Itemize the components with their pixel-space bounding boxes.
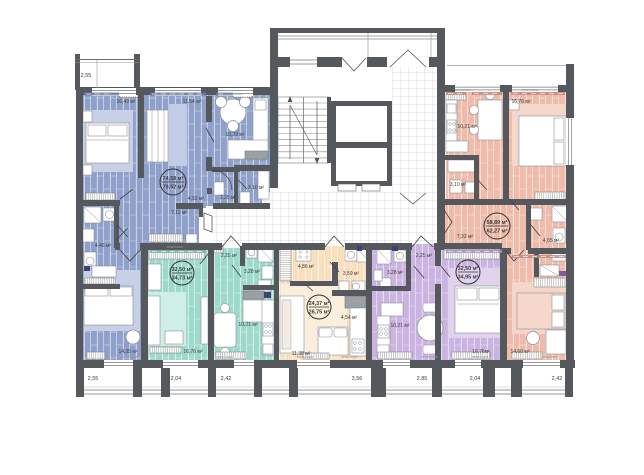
svg-text:4,65 м²: 4,65 м² bbox=[543, 238, 560, 244]
svg-text:26,75 м²: 26,75 м² bbox=[309, 310, 330, 316]
svg-text:62,27 м²: 62,27 м² bbox=[487, 229, 508, 235]
svg-text:2,25 м²: 2,25 м² bbox=[416, 253, 433, 259]
svg-text:4,92 м²: 4,92 м² bbox=[188, 196, 205, 202]
svg-text:влмпллвил: влмпллвил bbox=[167, 92, 184, 96]
svg-text:11,54 м²: 11,54 м² bbox=[183, 99, 202, 105]
svg-text:2,25 м²: 2,25 м² bbox=[221, 253, 238, 259]
svg-text:2,42: 2,42 bbox=[552, 376, 563, 382]
svg-text:влмпллвил: влмпллвил bbox=[542, 355, 559, 359]
svg-text:2,04: 2,04 bbox=[171, 376, 182, 382]
svg-text:10,29 м²: 10,29 м² bbox=[225, 132, 244, 138]
svg-text:32,50 м²: 32,50 м² bbox=[172, 267, 193, 273]
svg-text:влмпллвил: влмпллвил bbox=[422, 355, 439, 359]
svg-text:влмпллвил: влмпллвил bbox=[96, 92, 113, 96]
svg-text:10,21 м²: 10,21 м² bbox=[238, 322, 257, 328]
svg-text:влмпллвил: влмпллвил bbox=[297, 355, 314, 359]
svg-text:влмпллвил: влмпллвил bbox=[122, 355, 139, 359]
svg-text:2,42: 2,42 bbox=[221, 376, 232, 382]
svg-text:10,21 м²: 10,21 м² bbox=[390, 323, 409, 329]
svg-text:влмпллвил: влмпллвил bbox=[472, 355, 489, 359]
svg-text:2,55: 2,55 bbox=[81, 73, 92, 79]
svg-text:10,21 м²: 10,21 м² bbox=[457, 124, 476, 130]
svg-text:16,76 м²: 16,76 м² bbox=[511, 99, 530, 105]
svg-text:3,10 м²: 3,10 м² bbox=[450, 182, 467, 188]
svg-text:влмпллвил: влмпллвил bbox=[217, 355, 234, 359]
svg-text:58,89 м²: 58,89 м² bbox=[487, 220, 508, 226]
svg-text:7,32 м²: 7,32 м² bbox=[457, 234, 474, 240]
svg-text:3,10 м²: 3,10 м² bbox=[248, 185, 265, 191]
svg-text:влмпллвил: влмпллвил bbox=[522, 88, 539, 92]
svg-text:16,43 м²: 16,43 м² bbox=[116, 99, 135, 105]
svg-text:2,25 м²: 2,25 м² bbox=[220, 195, 237, 201]
svg-text:4,86 м²: 4,86 м² bbox=[298, 264, 315, 270]
svg-text:3,28 м²: 3,28 м² bbox=[387, 270, 404, 276]
svg-text:34,95 м²: 34,95 м² bbox=[458, 275, 479, 281]
svg-text:4,54 м²: 4,54 м² bbox=[341, 315, 358, 321]
svg-text:2,55: 2,55 bbox=[88, 376, 99, 382]
svg-text:влмпллвил: влмпллвил bbox=[455, 88, 472, 92]
svg-text:4,46 м²: 4,46 м² bbox=[95, 243, 112, 249]
svg-text:2,85: 2,85 bbox=[417, 376, 428, 382]
svg-text:влмпллвил: влмпллвил bbox=[227, 92, 244, 96]
svg-text:34,73 м²: 34,73 м² bbox=[172, 276, 193, 282]
svg-text:24,37 м²: 24,37 м² bbox=[309, 301, 330, 307]
svg-text:74,58 м²: 74,58 м² bbox=[163, 176, 184, 182]
svg-text:3,59 м²: 3,59 м² bbox=[343, 271, 360, 277]
svg-text:7,11 м²: 7,11 м² bbox=[171, 210, 187, 216]
svg-text:79,52 м²: 79,52 м² bbox=[163, 185, 184, 191]
svg-text:3,28 м²: 3,28 м² bbox=[244, 269, 261, 275]
svg-text:14,60 м²: 14,60 м² bbox=[510, 349, 529, 355]
svg-text:32,50 м²: 32,50 м² bbox=[458, 266, 479, 272]
svg-text:влмпллвил: влмпллвил bbox=[167, 245, 184, 249]
svg-text:3,56: 3,56 bbox=[352, 376, 363, 382]
svg-text:влмпллвил: влмпллвил bbox=[342, 355, 359, 359]
svg-text:2,04: 2,04 bbox=[470, 376, 481, 382]
svg-text:16,76 м²: 16,76 м² bbox=[183, 349, 202, 355]
